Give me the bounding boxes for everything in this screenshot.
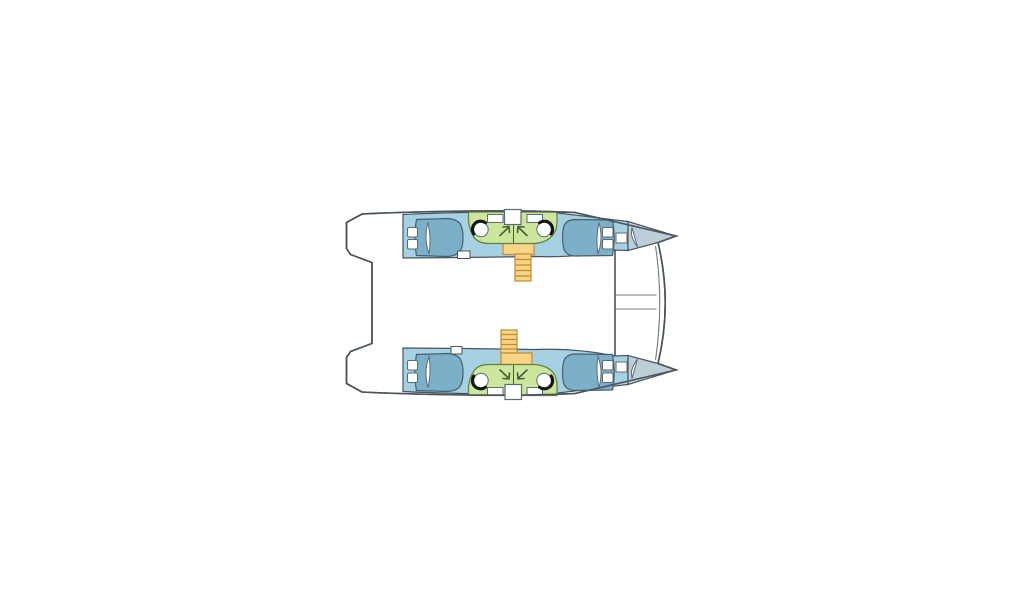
pillow (408, 361, 418, 371)
catamaran-floor-plan (0, 0, 1024, 600)
companionway-door (505, 385, 522, 400)
counter-hatch (488, 215, 504, 223)
starboard-aft-berth (415, 354, 463, 392)
deck-hatch (616, 362, 627, 372)
port-forward-berth (563, 220, 615, 257)
washbasin (537, 222, 551, 236)
pillow (408, 373, 418, 383)
starboard-forward-berth (563, 354, 615, 391)
pillow (408, 228, 418, 238)
companionway-door (505, 210, 522, 225)
floor-plan-canvas (0, 0, 1024, 600)
starboard-entry-step (451, 347, 462, 355)
port-aft-berth (415, 219, 463, 257)
pillow (603, 228, 614, 238)
deck-hatch (616, 233, 627, 243)
washbasin (537, 373, 551, 387)
pillow (603, 361, 614, 371)
washbasin (474, 373, 488, 387)
port-entry-step (458, 251, 471, 259)
pillow (603, 373, 614, 383)
pillow (603, 240, 614, 250)
washbasin (474, 222, 488, 236)
pillow (408, 240, 418, 250)
port-companionway-stairs (515, 254, 531, 281)
